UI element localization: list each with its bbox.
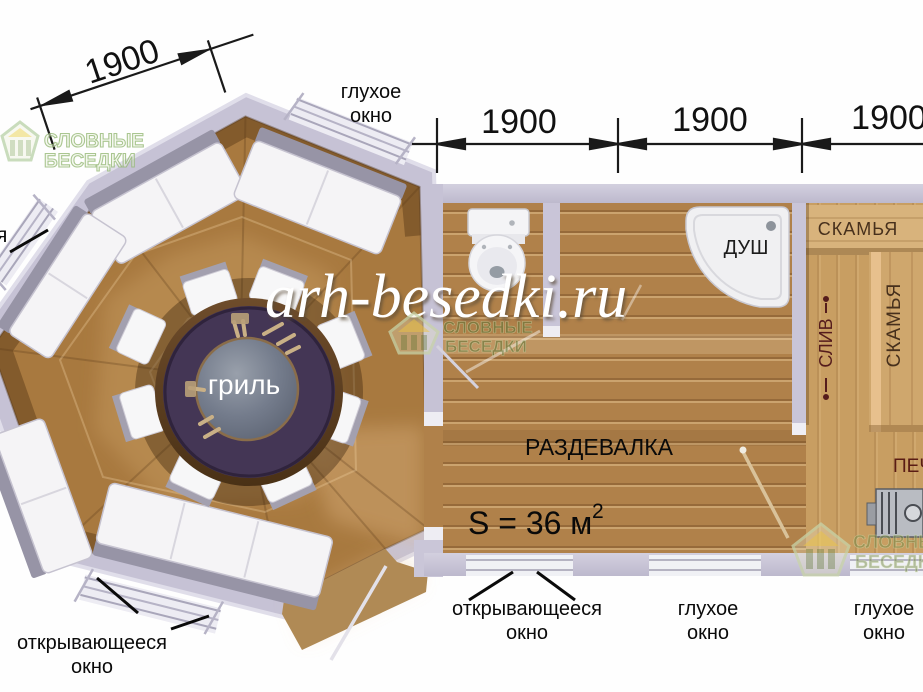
svg-text:РАЗДЕВАЛКА: РАЗДЕВАЛКА — [525, 434, 674, 460]
svg-text:открывающееся: открывающееся — [17, 632, 167, 654]
svg-text:глухое: глухое — [854, 598, 915, 620]
svg-text:БЕСЕДКИ: БЕСЕДКИ — [44, 151, 136, 172]
svg-text:1900: 1900 — [481, 103, 557, 141]
svg-text:СКАМЬЯ: СКАМЬЯ — [884, 283, 905, 368]
svg-text:СЛИВ: СЛИВ — [816, 318, 836, 367]
svg-text:1900: 1900 — [672, 101, 748, 139]
svg-text:1900: 1900 — [851, 99, 923, 137]
svg-text:БЕСЕДКИ: БЕСЕДКИ — [445, 337, 527, 356]
svg-text:СЛОВНЫЕ: СЛОВНЫЕ — [853, 532, 923, 552]
svg-text:глухое: глухое — [341, 81, 402, 103]
svg-text:БЕСЕДКИ: БЕСЕДКИ — [855, 552, 923, 572]
svg-text:S = 36 м: S = 36 м — [468, 505, 592, 541]
svg-text:окно: окно — [863, 622, 905, 644]
svg-text:окно: окно — [687, 622, 729, 644]
svg-text:гриль: гриль — [208, 369, 280, 400]
svg-text:ПЕЧЬ: ПЕЧЬ — [893, 456, 923, 477]
svg-text:СЛОВНЫЕ: СЛОВНЫЕ — [443, 318, 533, 337]
svg-text:окно: окно — [350, 105, 392, 127]
svg-text:2: 2 — [592, 500, 604, 523]
svg-text:я: я — [0, 224, 7, 247]
svg-text:окно: окно — [506, 622, 548, 644]
svg-text:СЛОВНЫЕ: СЛОВНЫЕ — [44, 131, 144, 152]
svg-text:глухое: глухое — [678, 598, 739, 620]
svg-text:окно: окно — [71, 656, 113, 678]
svg-text:открывающееся: открывающееся — [452, 598, 602, 620]
svg-text:СКАМЬЯ: СКАМЬЯ — [818, 219, 899, 239]
svg-text:ДУШ: ДУШ — [724, 237, 769, 259]
